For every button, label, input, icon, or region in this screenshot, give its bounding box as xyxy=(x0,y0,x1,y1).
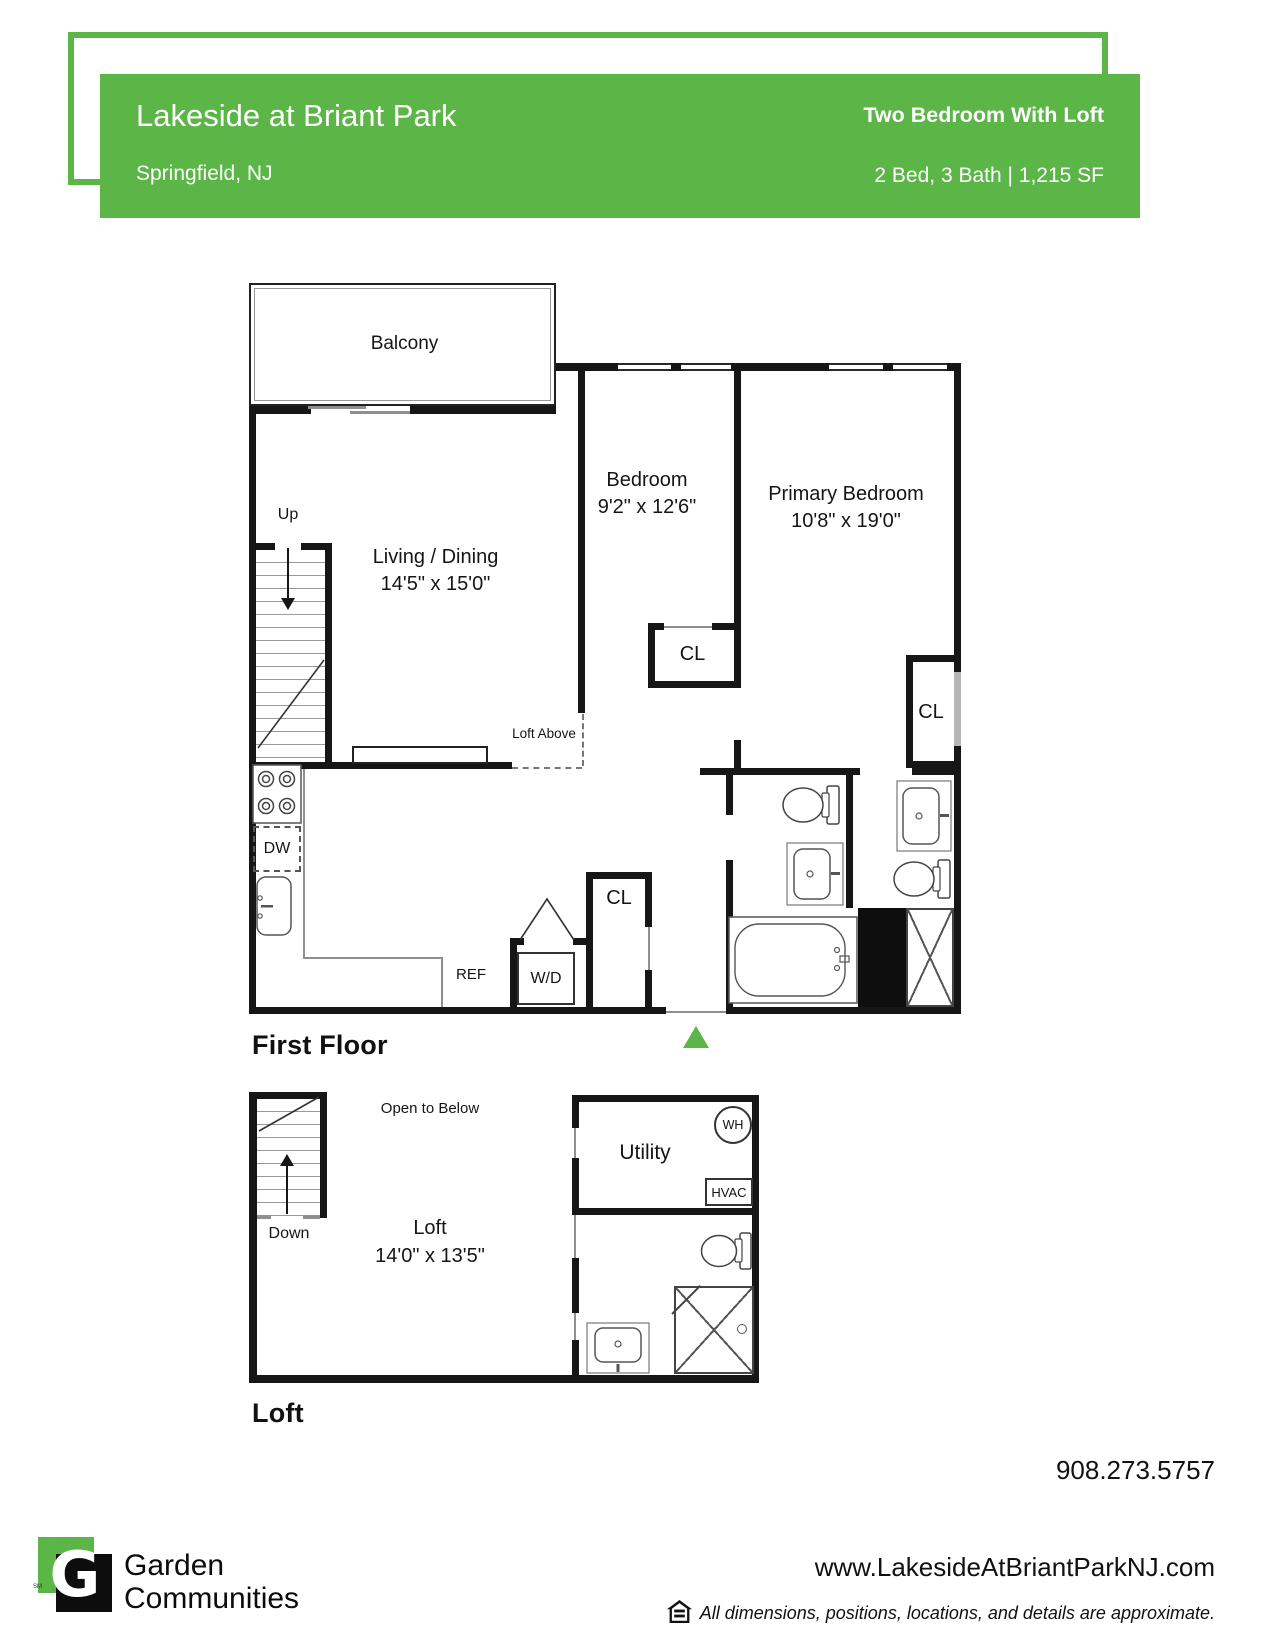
entry-threshold xyxy=(666,1011,726,1013)
shower-head-icon xyxy=(737,1324,747,1334)
disclaimer-row: All dimensions, positions, locations, an… xyxy=(400,1600,1215,1624)
wall xyxy=(249,406,311,414)
living-room-dims: 14'5" x 15'0" xyxy=(328,572,543,596)
stair-break-line xyxy=(257,1094,321,1134)
wall xyxy=(734,623,741,688)
property-location: Springfield, NJ xyxy=(136,162,273,186)
wall xyxy=(645,970,652,1007)
wall xyxy=(572,1340,579,1382)
wall xyxy=(556,363,618,371)
garden-communities-logo: G xyxy=(38,1537,112,1611)
contact-phone: 908.273.5757 xyxy=(600,1455,1215,1486)
wall xyxy=(734,740,741,768)
refrigerator-label: REF xyxy=(436,966,506,984)
bathroom-sink-icon xyxy=(896,780,952,852)
closet-door xyxy=(664,626,712,628)
shower-icon xyxy=(906,908,954,1007)
wall xyxy=(586,872,652,879)
utility-room-label: Utility xyxy=(580,1140,710,1166)
primary-bedroom-dims: 10'8" x 19'0" xyxy=(738,509,954,533)
sliding-closet-door xyxy=(954,672,961,746)
entry-arrow-icon xyxy=(683,1026,709,1048)
wall xyxy=(700,768,860,775)
window xyxy=(618,363,671,371)
wall xyxy=(578,363,585,713)
washer-dryer-label: W/D xyxy=(517,952,575,1005)
living-room-label: Living / Dining xyxy=(328,545,543,569)
bedroom-closet-label: CL xyxy=(650,642,735,666)
loft-title: Loft xyxy=(252,1398,304,1429)
loft-above-label: Loft Above xyxy=(500,726,588,742)
wall xyxy=(249,1007,666,1014)
first-floor-title: First Floor xyxy=(252,1030,388,1061)
wall xyxy=(510,938,517,1007)
arrow-head-icon xyxy=(281,598,295,610)
counter-edge xyxy=(303,769,305,959)
bedroom-label: Bedroom xyxy=(562,468,732,492)
bathroom-sink-icon xyxy=(586,1322,650,1374)
toilet-icon xyxy=(892,856,952,902)
toilet-icon xyxy=(780,782,842,828)
bathroom-sink-icon xyxy=(786,842,844,906)
wall xyxy=(249,543,275,550)
wall xyxy=(648,681,741,688)
arrow-head-icon xyxy=(280,1154,294,1166)
disclaimer-text: All dimensions, positions, locations, an… xyxy=(700,1603,1215,1623)
open-to-below-label: Open to Below xyxy=(352,1100,508,1118)
primary-closet-label: CL xyxy=(908,700,954,724)
kitchen-sink-icon xyxy=(252,874,294,938)
water-heater-icon: WH xyxy=(714,1106,752,1144)
wall xyxy=(712,623,741,630)
loft-room-dims: 14'0" x 13'5" xyxy=(330,1244,530,1268)
wall xyxy=(572,1208,759,1215)
wall xyxy=(572,1095,759,1102)
brand-name-line1: Garden xyxy=(124,1549,224,1583)
stair-cap xyxy=(257,1215,271,1219)
header-banner: Lakeside at Briant Park Springfield, NJ … xyxy=(100,74,1140,218)
page-title: Lakeside at Briant Park xyxy=(136,98,457,134)
bedroom-dims: 9'2" x 12'6" xyxy=(562,495,732,519)
logo-trademark: SM xyxy=(33,1584,42,1590)
stairs-down-label: Down xyxy=(256,1224,322,1244)
wall xyxy=(572,1258,579,1313)
floor-plan-flyer: Lakeside at Briant Park Springfield, NJ … xyxy=(0,0,1275,1650)
wall xyxy=(726,775,733,815)
entry-closet-label: CL xyxy=(586,886,652,910)
window xyxy=(829,363,883,371)
dishwasher-label: DW xyxy=(253,826,301,872)
stair-direction-arrow xyxy=(286,1162,288,1214)
loft-room-label: Loft xyxy=(330,1216,530,1240)
stair-cap xyxy=(303,1215,320,1219)
wall xyxy=(249,1375,759,1383)
primary-bedroom-label: Primary Bedroom xyxy=(738,482,954,506)
wall xyxy=(906,655,961,662)
plumbing-chase xyxy=(858,908,906,1007)
hvac-unit-label: HVAC xyxy=(705,1178,753,1206)
wall xyxy=(320,1092,327,1218)
wall xyxy=(906,761,961,768)
wall xyxy=(572,1095,579,1128)
stair-break-line xyxy=(256,658,326,750)
plan-type: Two Bedroom With Loft xyxy=(863,103,1104,128)
equal-housing-icon xyxy=(667,1600,692,1623)
wall xyxy=(912,768,961,775)
stair-direction-arrow xyxy=(287,548,289,600)
bathtub-icon xyxy=(728,916,858,1004)
wall xyxy=(726,1007,961,1014)
sliding-door xyxy=(308,406,366,409)
loft-above-dashed-line xyxy=(512,767,582,769)
stairs-up-label: Up xyxy=(266,505,310,525)
wall xyxy=(671,363,681,371)
closet-door xyxy=(648,927,650,970)
plan-specs: 2 Bed, 3 Bath | 1,215 SF xyxy=(874,164,1104,188)
bifold-door xyxy=(516,894,578,942)
sliding-door xyxy=(350,411,410,414)
wall xyxy=(883,363,893,371)
counter-edge xyxy=(303,957,443,959)
wall xyxy=(572,1158,579,1215)
toilet-icon xyxy=(700,1230,752,1272)
kitchen-bar-counter xyxy=(352,746,488,764)
window xyxy=(893,363,947,371)
wall xyxy=(410,406,556,414)
website-link[interactable]: www.LakesideAtBriantParkNJ.com xyxy=(600,1552,1215,1583)
brand-name-line2: Communities xyxy=(124,1582,299,1616)
wall xyxy=(731,363,829,371)
wall-line xyxy=(574,1095,576,1380)
window xyxy=(681,363,731,371)
stove-icon xyxy=(252,764,302,824)
balcony-label: Balcony xyxy=(322,332,487,355)
wall xyxy=(846,775,853,908)
